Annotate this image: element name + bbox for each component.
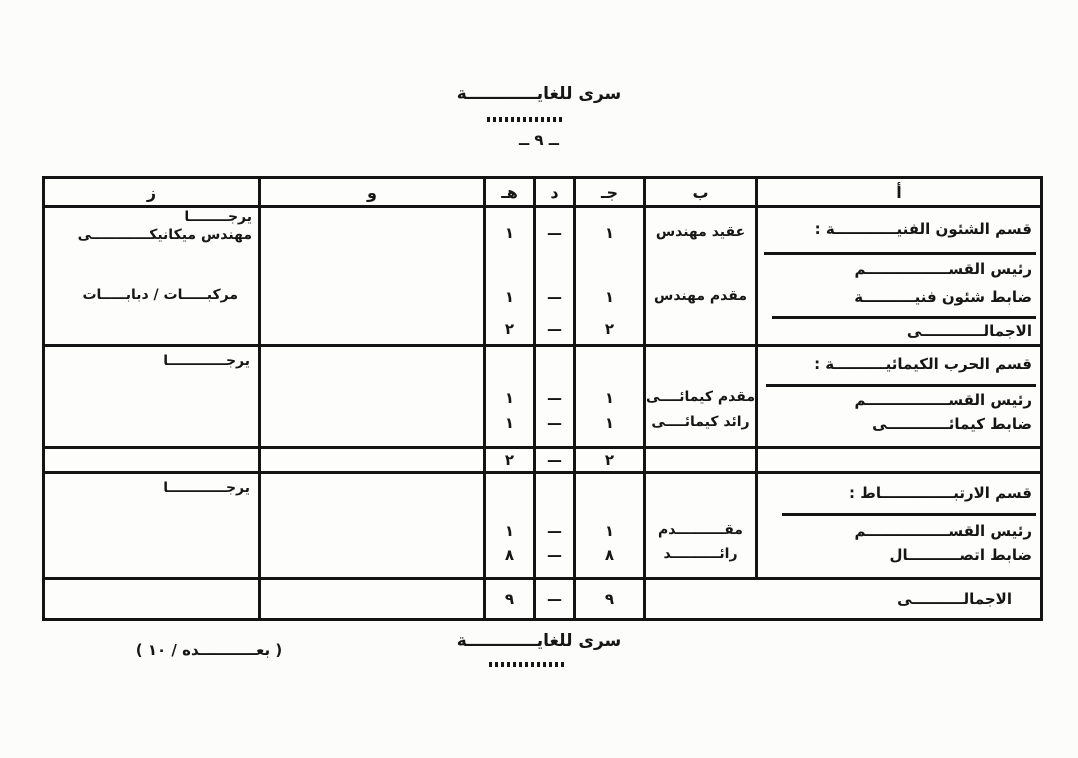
cell-gt-blank-w — [261, 580, 486, 618]
grand-total-j: ٩ — [576, 590, 643, 608]
s1-j-total: ٢ — [576, 320, 643, 338]
s3-post2: ضابط اتصــــــــــال — [889, 546, 1032, 564]
s3-d-row2: — — [536, 546, 573, 564]
cell-s2t-col-j: ٢ — [576, 449, 646, 474]
cell-s1-col-j: ١ ١ ٢ — [576, 208, 646, 347]
s3-post1: رئيس القســــــــــــــــم — [855, 522, 1032, 540]
s2-total-d: — — [536, 451, 573, 469]
cell-s1-ranks: عقيد مهندس مقدم مهندس — [646, 208, 758, 347]
grand-total-d: — — [536, 590, 573, 608]
s3-d-row1: — — [536, 522, 573, 540]
page-number: ــ ٩ ــ — [0, 131, 1078, 149]
col-header-w: و — [261, 179, 486, 208]
s1-post1: رئيس القســــــــــــــــم — [855, 260, 1032, 278]
top-classification: سرى للغايــــــــــــة — [0, 84, 1078, 104]
s3-j-row2: ٨ — [576, 546, 643, 564]
cell-s2-posts: قسم الحرب الكيمائيــــــــــة : رئيس الق… — [758, 347, 1040, 449]
s1-title: قسم الشئون الفنيــــــــــــة : — [815, 220, 1032, 238]
cell-s3-remarks: يرجــــــــــــا — [45, 474, 261, 580]
s1-post2: ضابط شئون فنيــــــــــة — [854, 288, 1032, 306]
s1-h-total: ٢ — [486, 320, 533, 338]
cell-s2-blank-w — [261, 347, 486, 449]
s1-d-row1: — — [536, 224, 573, 242]
s1-j-row2: ١ — [576, 288, 643, 306]
s2-rank2: رائد كيمائــــى — [646, 414, 755, 430]
cell-s3-col-d: — — — [536, 474, 576, 580]
s1-j-row1: ١ — [576, 224, 643, 242]
cell-gt-col-d: — — [536, 580, 576, 618]
s1-title-underline — [764, 252, 1036, 255]
grand-total-label: الاجمالــــــــــى — [897, 590, 1012, 608]
s1-total-label: الاجمالــــــــــــى — [907, 322, 1032, 340]
cell-s3-col-h: ١ ٨ — [486, 474, 536, 580]
s3-h-row2: ٨ — [486, 546, 533, 564]
cell-s2-col-d: — — — [536, 347, 576, 449]
cell-s2t-blank-a — [758, 449, 1040, 474]
document-page: سرى للغايــــــــــــة ــ ٩ ــ ز و هـ د … — [0, 0, 1078, 758]
cell-s2-remarks: يرجــــــــــــا — [45, 347, 261, 449]
s2-h-row2: ١ — [486, 414, 533, 432]
cell-gt-col-j: ٩ — [576, 580, 646, 618]
grand-total-h: ٩ — [486, 590, 533, 608]
s1-rank1: عقيد مهندس — [646, 224, 755, 240]
cell-s1-posts: قسم الشئون الفنيــــــــــــة : رئيس الق… — [758, 208, 1040, 347]
s2-post1: رئيس القســــــــــــــــم — [855, 391, 1032, 409]
cell-s3-blank-w — [261, 474, 486, 580]
staffing-table: ز و هـ د جـ ب أ يرجــــــــا مهندس ميكان… — [42, 176, 1043, 621]
cell-gt-col-h: ٩ — [486, 580, 536, 618]
s2-d-row2: — — [536, 414, 573, 432]
s1-remark-line2: مهندس ميكانيكــــــــــــى — [78, 227, 252, 243]
cell-s2t-blank-b — [646, 449, 758, 474]
cell-s2t-col-d: — — [536, 449, 576, 474]
col-header-a: أ — [758, 179, 1040, 208]
s2-total-h: ٢ — [486, 451, 533, 469]
cell-s3-ranks: مقــــــــــدم رائــــــــــد — [646, 474, 758, 580]
s2-post2: ضابط كيمائــــــــــــى — [872, 415, 1032, 433]
s2-j-row1: ١ — [576, 389, 643, 407]
cell-s2t-blank-z — [45, 449, 261, 474]
s3-j-row1: ١ — [576, 522, 643, 540]
cell-grand-total-label: الاجمالــــــــــى — [646, 580, 1040, 618]
s1-h-row2: ١ — [486, 288, 533, 306]
top-squiggle-underline — [487, 117, 563, 122]
s2-j-row2: ١ — [576, 414, 643, 432]
cell-s1-remarks: يرجــــــــا مهندس ميكانيكــــــــــــى … — [45, 208, 261, 347]
cell-s2t-blank-w — [261, 449, 486, 474]
s1-subtotal-rule — [772, 316, 1036, 319]
cell-s2t-col-h: ٢ — [486, 449, 536, 474]
s2-title: قسم الحرب الكيمائيــــــــــة : — [814, 355, 1032, 373]
s2-rank1: مقدم كيمائــــى — [646, 389, 755, 405]
cell-s3-posts: قسم الارتبــــــــــــــاط : رئيس القســ… — [758, 474, 1040, 580]
col-header-z: ز — [45, 179, 261, 208]
s1-remark-line3: مركبـــــات / دبابـــــات — [82, 287, 238, 303]
s3-h-row1: ١ — [486, 522, 533, 540]
s1-d-total: — — [536, 320, 573, 338]
s2-remark: يرجــــــــــــا — [163, 353, 250, 369]
continuation-note: ( بعـــــــــــده / ١٠ ) — [84, 641, 334, 659]
s2-h-row1: ١ — [486, 389, 533, 407]
col-header-h: هـ — [486, 179, 536, 208]
s1-d-row2: — — [536, 288, 573, 306]
s3-title-underline — [782, 513, 1036, 516]
col-header-b: ب — [646, 179, 758, 208]
col-header-j: جـ — [576, 179, 646, 208]
s2-d-row1: — — [536, 389, 573, 407]
bottom-squiggle-underline — [489, 662, 565, 667]
cell-s2-col-j: ١ ١ — [576, 347, 646, 449]
s2-title-underline — [766, 384, 1036, 387]
cell-gt-blank-z — [45, 580, 261, 618]
s1-h-row1: ١ — [486, 224, 533, 242]
s3-remark: يرجــــــــــــا — [163, 480, 250, 496]
cell-s2-ranks: مقدم كيمائــــى رائد كيمائــــى — [646, 347, 758, 449]
s2-total-j: ٢ — [576, 451, 643, 469]
s1-remark-line1: يرجــــــــا — [184, 209, 252, 225]
cell-s1-col-d: — — — — [536, 208, 576, 347]
s3-rank2: رائــــــــــد — [646, 546, 755, 562]
cell-s3-col-j: ١ ٨ — [576, 474, 646, 580]
s3-title: قسم الارتبــــــــــــــاط : — [849, 484, 1032, 502]
cell-s1-blank-w — [261, 208, 486, 347]
cell-s2-col-h: ١ ١ — [486, 347, 536, 449]
s1-rank2: مقدم مهندس — [646, 288, 755, 304]
cell-s1-col-h: ١ ١ ٢ — [486, 208, 536, 347]
s3-rank1: مقــــــــــدم — [646, 522, 755, 538]
col-header-d: د — [536, 179, 576, 208]
